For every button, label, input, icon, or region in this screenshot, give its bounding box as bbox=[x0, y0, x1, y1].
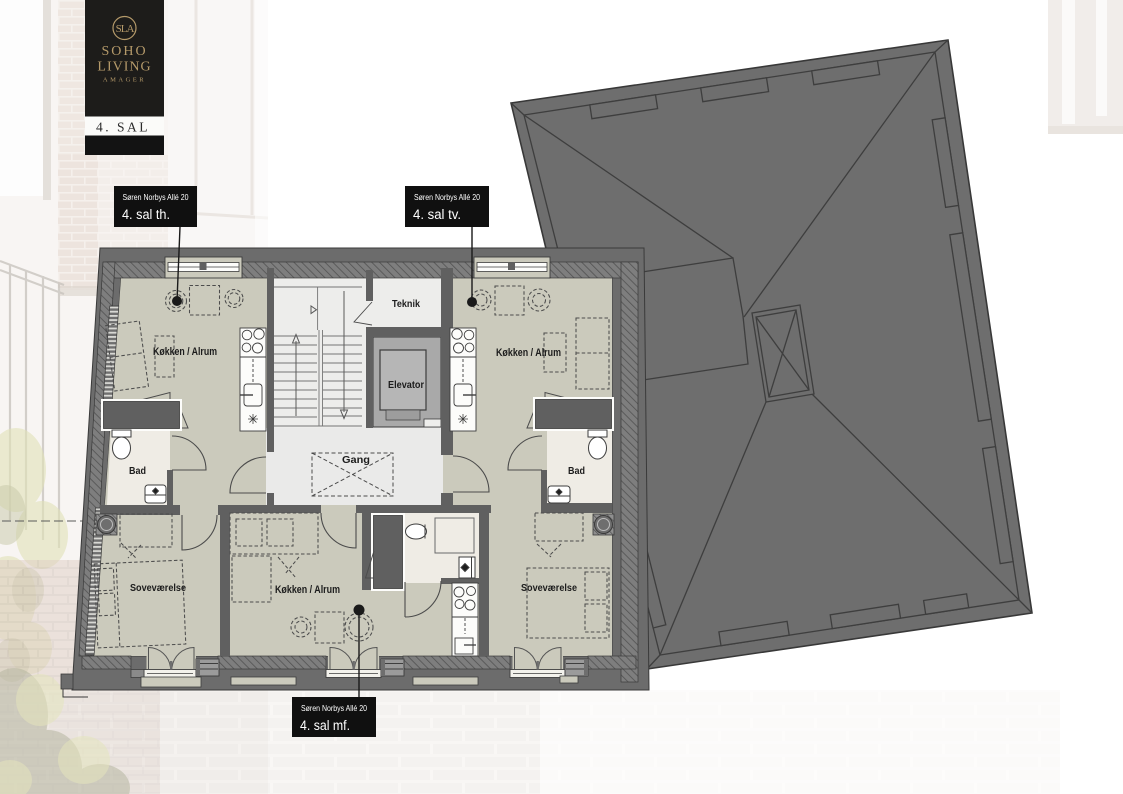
svg-text:Søren Norbys Allé 20: Søren Norbys Allé 20 bbox=[414, 193, 480, 202]
svg-text:4. sal mf.: 4. sal mf. bbox=[300, 718, 350, 733]
svg-text:Køkken / Alrum: Køkken / Alrum bbox=[275, 584, 340, 596]
svg-text:Gang: Gang bbox=[342, 455, 370, 466]
svg-text:4. SAL: 4. SAL bbox=[96, 120, 150, 135]
svg-text:SOHO: SOHO bbox=[101, 44, 147, 59]
svg-text:Bad: Bad bbox=[568, 466, 585, 477]
svg-text:Soveværelse: Soveværelse bbox=[130, 583, 186, 594]
svg-text:4. sal th.: 4. sal th. bbox=[122, 207, 170, 222]
svg-text:Soveværelse: Soveværelse bbox=[521, 583, 577, 594]
svg-text:4. sal tv.: 4. sal tv. bbox=[413, 207, 461, 222]
svg-text:SLA: SLA bbox=[116, 23, 135, 35]
svg-text:Elevator: Elevator bbox=[388, 380, 424, 391]
svg-text:Teknik: Teknik bbox=[392, 299, 420, 310]
svg-text:Bad: Bad bbox=[129, 466, 146, 477]
svg-text:AMAGER: AMAGER bbox=[103, 77, 146, 84]
svg-text:LIVING: LIVING bbox=[97, 60, 151, 75]
svg-text:Køkken / Alrum: Køkken / Alrum bbox=[496, 347, 561, 359]
svg-text:Søren Norbys Allé 20: Søren Norbys Allé 20 bbox=[123, 193, 189, 202]
svg-text:Køkken / Alrum: Køkken / Alrum bbox=[153, 346, 217, 358]
svg-text:Søren Norbys Allé 20: Søren Norbys Allé 20 bbox=[301, 704, 367, 713]
